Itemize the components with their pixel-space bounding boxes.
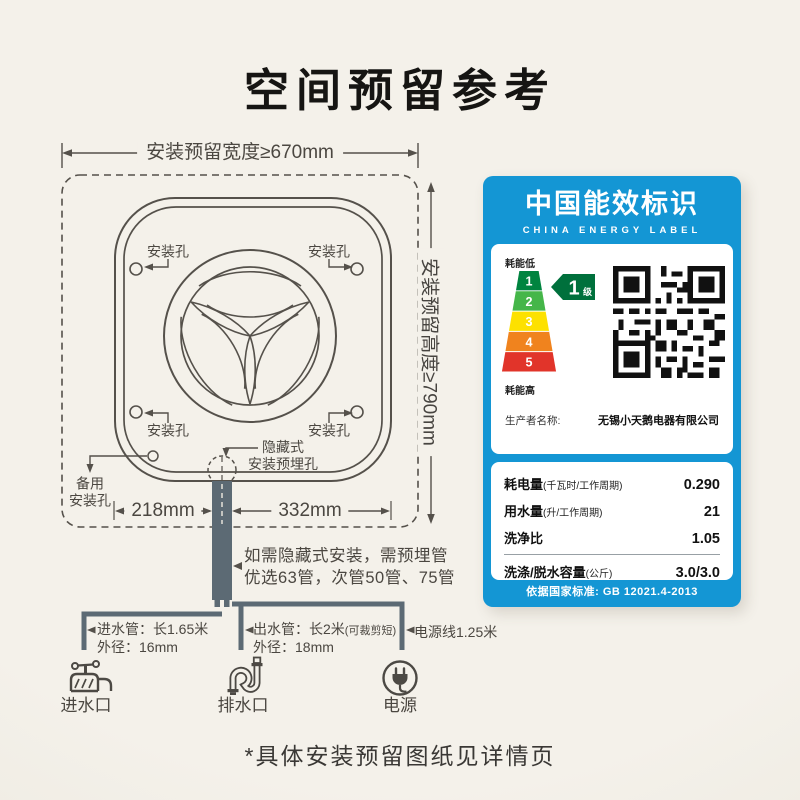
outlet-hose-note: (可裁剪短): [345, 625, 396, 637]
hidden-hole-label-line2: 安装预埋孔: [248, 456, 318, 473]
hole-label-top-right: 安装孔: [308, 244, 350, 261]
drum: [164, 250, 336, 422]
producer-value: 无锡小天鹅电器有限公司: [598, 412, 719, 428]
outlet-hose-label-line2: 外径：18mm: [253, 639, 334, 656]
metric-value: 3.0/3.0: [676, 565, 720, 581]
hole-label-bottom-right: 安装孔: [308, 423, 350, 440]
grade-badge-suffix: 级: [582, 286, 593, 297]
drain-caption: 排水口: [218, 696, 269, 716]
grade-number-1: 1: [526, 274, 533, 288]
metric-value: 0.290: [684, 477, 720, 493]
energy-label-title-cn: 中国能效标识: [483, 191, 741, 218]
producer-label: 生产者名称:: [505, 413, 560, 428]
outlet-hose-text: 出水管：长2米: [253, 621, 345, 637]
metric-label: 洗净比: [504, 531, 543, 546]
metric-unit: (升/工作周期): [543, 508, 602, 519]
low-consumption-label: 耗能低: [505, 255, 535, 270]
outlet-hose-label-line1: 出水管：长2米(可裁剪短): [253, 621, 396, 638]
pipe-note-arrowhead: [233, 562, 242, 570]
grade-number-2: 2: [526, 295, 533, 309]
metric-unit: (千瓦时/工作周期): [543, 481, 622, 492]
pipe-note-line1: 如需隐藏式安装，需预埋管: [244, 547, 448, 566]
backup-hole-label: 备用 安装孔: [69, 475, 111, 508]
metric-row-power: 耗电量(千瓦时/工作周期) 0.290: [504, 470, 720, 497]
footnote: *具体安装预留图纸见详情页: [0, 737, 800, 771]
metric-label: 洗涤/脱水容量: [504, 565, 586, 580]
page: 空间预留参考: [0, 0, 800, 800]
metric-row-wash-ratio: 洗净比 1.05: [504, 524, 720, 551]
metric-value: 1.05: [692, 531, 720, 547]
drain-icon: [228, 658, 263, 696]
hole-label-top-left: 安装孔: [147, 244, 189, 261]
backup-hole-label-line2: 安装孔: [69, 492, 111, 509]
metric-label: 用水量: [504, 504, 543, 519]
grade-number-5: 5: [526, 356, 533, 370]
grade-badge-number: 1: [568, 278, 579, 300]
metric-row-water: 用水量(升/工作周期) 21: [504, 497, 720, 524]
power-icon: [384, 662, 417, 695]
energy-grade-panel: 耗能低 1 2 3 4 5 1 级: [491, 244, 733, 454]
energy-label-title-en: CHINA ENERGY LABEL: [483, 225, 741, 236]
height-dimension-label: 安装预留高度≥790mm: [418, 248, 445, 456]
inlet-hose-label-line1: 进水管：长1.65米: [97, 621, 208, 638]
metric-value: 21: [704, 504, 720, 520]
inlet-caption: 进水口: [61, 696, 112, 716]
high-consumption-label: 耗能高: [505, 382, 535, 397]
grade-1-badge: 1 级: [551, 273, 595, 301]
metric-label: 耗电量: [504, 477, 543, 492]
energy-metrics-panel: 耗电量(千瓦时/工作周期) 0.290 用水量(升/工作周期) 21 洗净比 1…: [491, 462, 733, 580]
backup-hole-leader: [87, 456, 148, 473]
hole-label-bottom-left: 安装孔: [147, 423, 189, 440]
inlet-hose-label-line2: 外径：16mm: [97, 639, 178, 656]
power-cord-label: 电源线1.25米: [414, 624, 497, 641]
national-standard: 依据国家标准: GB 12021.4-2013: [483, 583, 741, 599]
metric-row-capacity: 洗涤/脱水容量(公斤) 3.0/3.0: [504, 554, 720, 585]
faucet-icon: [71, 661, 111, 691]
embedded-pipe: [212, 457, 232, 607]
dimension-218: 218mm: [124, 500, 201, 522]
energy-label: 中国能效标识 CHINA ENERGY LABEL 耗能低 1 2 3 4 5: [483, 176, 741, 607]
producer-row: 生产者名称: 无锡小天鹅电器有限公司: [505, 412, 719, 428]
dimension-332: 332mm: [271, 500, 348, 522]
backup-hole-circle: [148, 451, 158, 461]
grade-number-3: 3: [526, 315, 533, 329]
width-dimension-label: 安装预留宽度≥670mm: [137, 142, 343, 164]
power-caption: 电源: [383, 696, 417, 716]
metric-unit: (公斤): [586, 569, 613, 580]
qr-code: [613, 266, 725, 378]
energy-grade-pyramid: 1 2 3 4 5: [500, 271, 558, 385]
grade-number-4: 4: [526, 335, 533, 349]
backup-hole-label-line1: 备用: [69, 475, 111, 492]
hidden-hole-label-line1: 隐藏式: [262, 439, 304, 456]
pipe-note-line2: 优选63管，次管50管、75管: [244, 569, 455, 588]
